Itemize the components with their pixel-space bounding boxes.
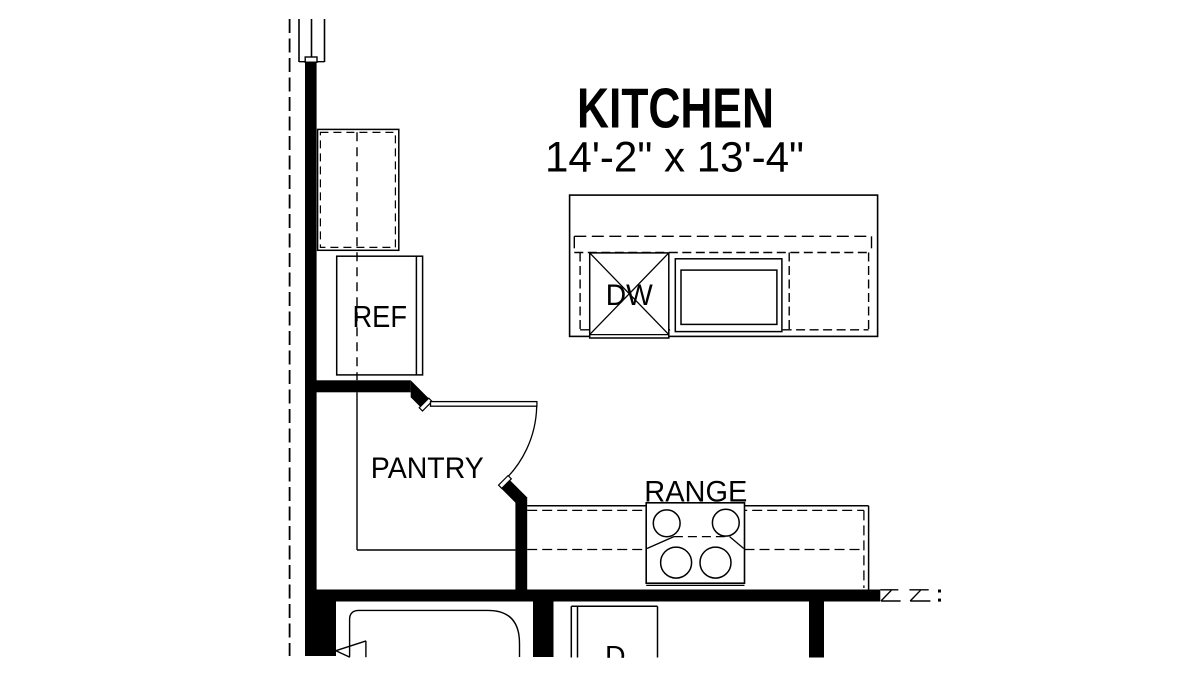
svg-text:KITCHEN: KITCHEN bbox=[577, 77, 774, 140]
svg-text:DW: DW bbox=[606, 279, 654, 312]
svg-text:14'-2" x 13'-4": 14'-2" x 13'-4" bbox=[545, 134, 804, 182]
svg-text:REF: REF bbox=[353, 300, 408, 334]
svg-text:RANGE: RANGE bbox=[644, 476, 747, 509]
svg-text:PANTRY: PANTRY bbox=[371, 452, 484, 485]
